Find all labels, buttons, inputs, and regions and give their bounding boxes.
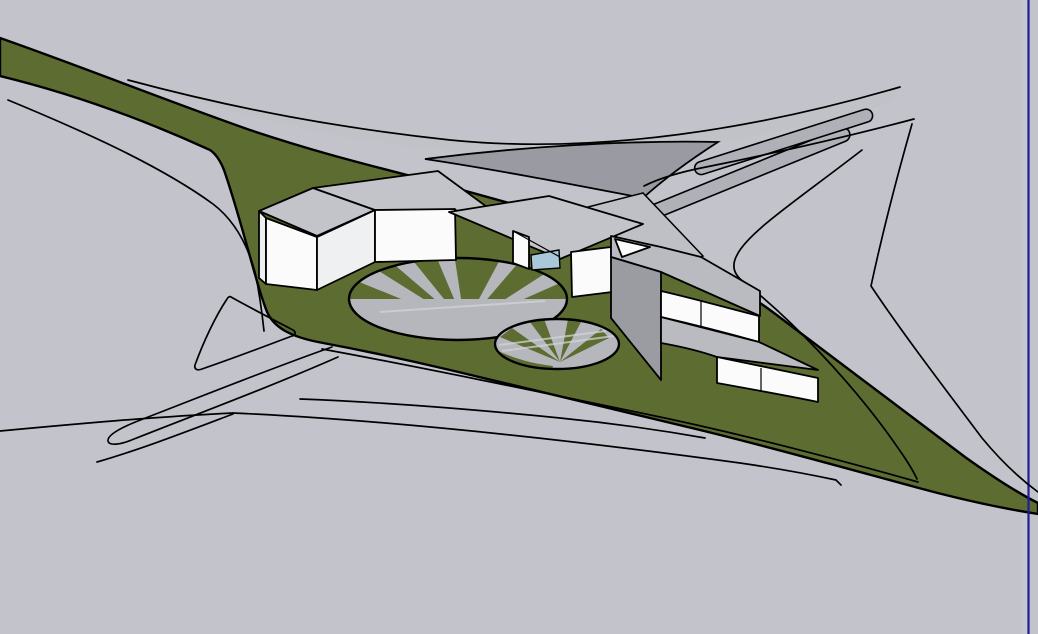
model-viewport[interactable]: [0, 0, 1038, 634]
front-panel: [571, 247, 612, 297]
west-gable-face: [259, 211, 266, 284]
pillar: [513, 231, 529, 269]
viewport-canvas[interactable]: [0, 0, 1038, 634]
front-face: [375, 209, 456, 262]
small-radial-plaza[interactable]: [494, 319, 619, 370]
